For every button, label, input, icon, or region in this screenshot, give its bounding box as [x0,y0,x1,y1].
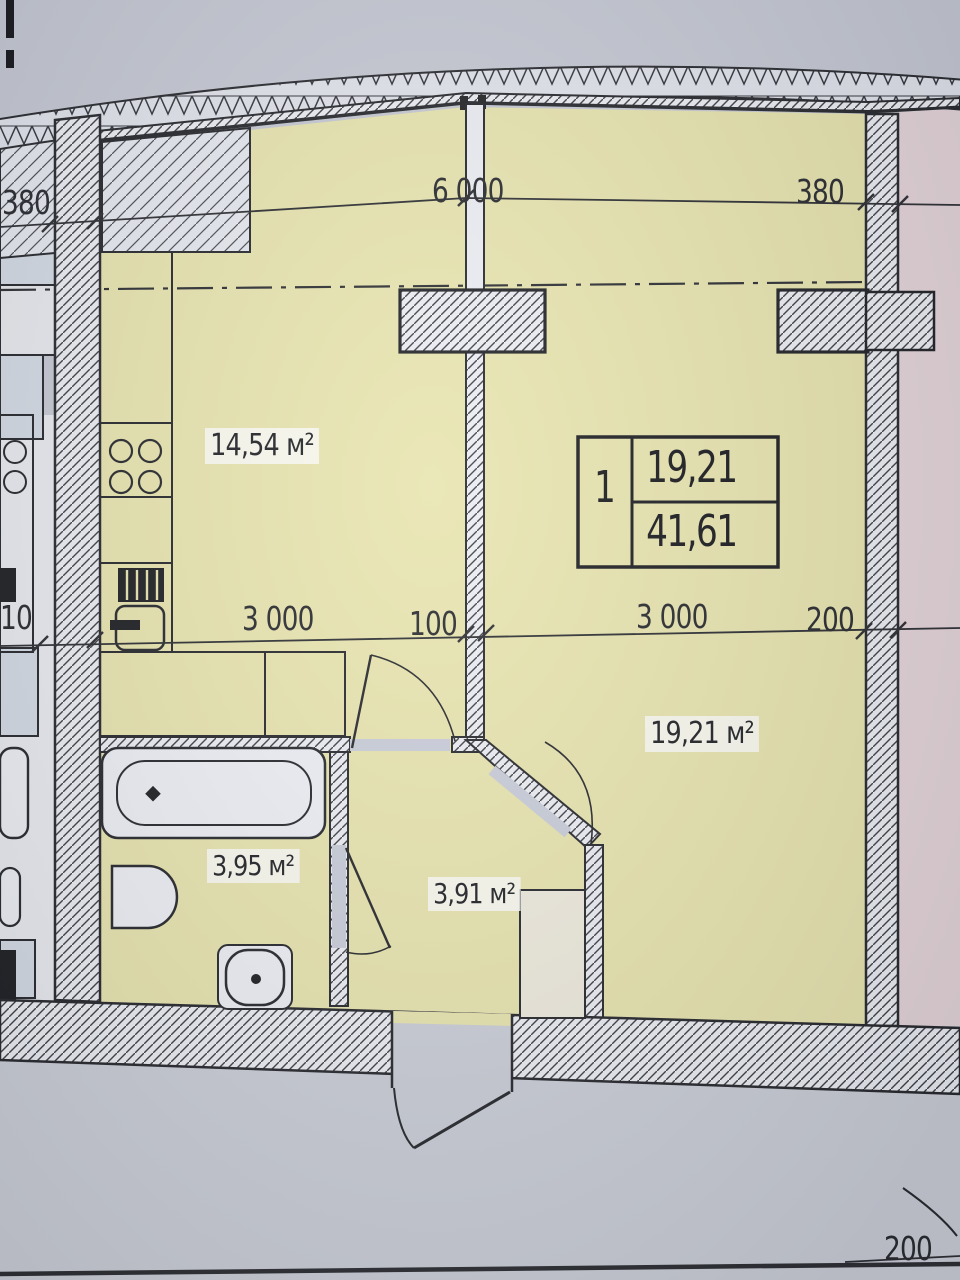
room-area-kitchen: 14,54 м² [205,428,319,464]
dim-label-10: 10 [0,598,32,637]
left-neighbor-unit [0,0,55,1005]
dim-label-380-left: 380 [2,183,50,222]
room-area-living: 19,21 м² [645,716,759,752]
stamp-living-area: 19,21 [625,442,758,493]
party-wall-right [866,114,898,1026]
room-area-hallway: 3,91 м² [428,877,520,911]
dim-label-100: 100 [409,604,457,643]
stamp-total-area: 41,61 [625,506,758,557]
basin-drain [251,974,261,984]
kitchen-shaft-block [102,128,250,252]
right-neighbor-unit [898,106,960,1026]
dim-label-380-right: 380 [796,172,844,211]
dim-label-6000: 6 000 [432,171,504,210]
dim-label-3000-kitchen: 3 000 [242,599,314,638]
toilet [112,866,177,928]
hallway-right-partition [585,845,603,1018]
corridor [0,1060,960,1280]
floor-plan-photo: 380 6 000 380 10 3 000 100 3 000 200 200… [0,0,960,1280]
kitchen-room-partition [466,352,484,744]
dim-label-200-bottom: 200 [884,1229,932,1268]
hallway-closet [520,890,585,1018]
room-area-bathroom: 3,95 м² [207,849,299,883]
stamp-room-count: 1 [594,462,614,513]
sink-faucet [110,620,140,630]
party-wall-left [55,115,100,1002]
dim-label-3000-room: 3 000 [636,597,708,636]
dim-label-200-wall: 200 [806,600,854,639]
